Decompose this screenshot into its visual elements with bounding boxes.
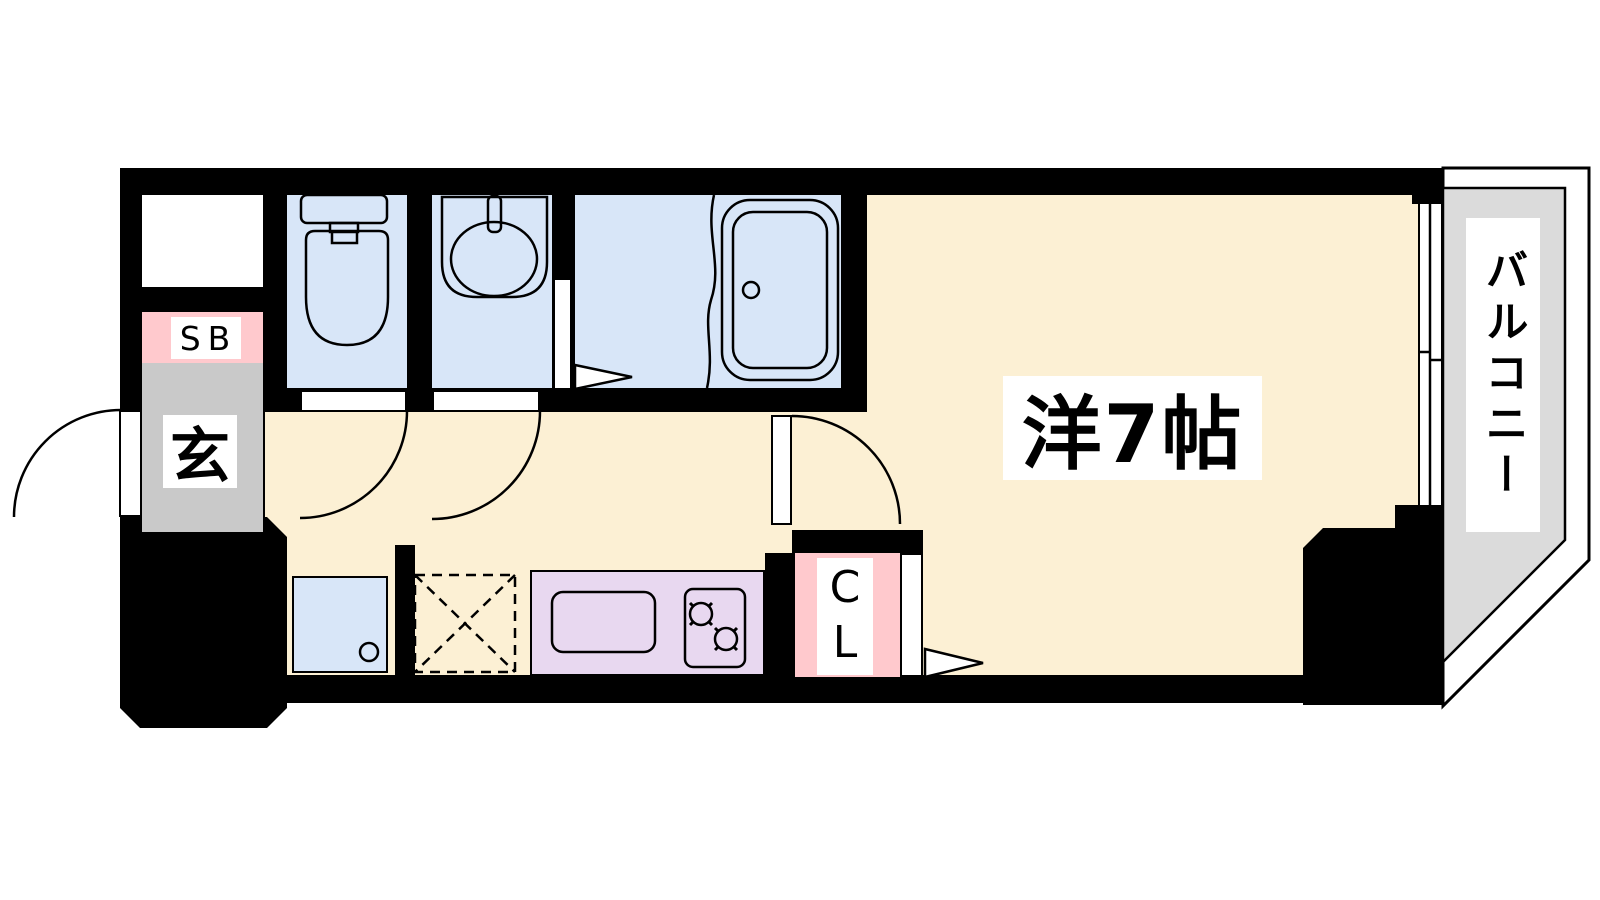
closet-label: CL <box>817 558 873 675</box>
toilet-door-leaf <box>300 390 407 412</box>
main-room-label: 洋7帖 <box>1003 376 1262 480</box>
entrance-door-leaf <box>119 410 142 517</box>
wall-above-window <box>1412 195 1443 204</box>
washroom-door-leaf <box>432 390 540 412</box>
kitchen-counter <box>530 570 765 676</box>
wall-kitchen-divider <box>395 545 415 677</box>
wall-bottom <box>287 675 1412 703</box>
pillar-bottom-right <box>1303 528 1443 705</box>
entrance-door-arc <box>14 410 121 517</box>
pillar-bottom-left <box>120 517 287 728</box>
wall-closet-left <box>765 553 795 677</box>
wall-toilet-washroom <box>407 168 432 412</box>
entrance-label: 玄 <box>163 415 237 488</box>
closet-door <box>900 553 923 677</box>
laundry-pan <box>292 576 388 673</box>
wall-bathroom-right <box>841 168 867 412</box>
toilet-room <box>287 195 407 388</box>
shoe-box-label: SB <box>171 317 241 359</box>
bathroom <box>575 195 841 388</box>
wall-closet-top <box>792 530 923 553</box>
wall-left <box>120 195 142 412</box>
hall-door-leaf <box>771 415 792 525</box>
balcony-label: バルコニー <box>1466 218 1540 532</box>
wall-top <box>120 168 1443 195</box>
balcony-window <box>1418 202 1443 510</box>
wall-entry-column <box>263 168 287 412</box>
pipe-space <box>142 195 263 287</box>
bathroom-sliding-door <box>553 278 572 390</box>
floor-plan-page: { "plan": { "type": "apartment-floor-pla… <box>0 0 1600 900</box>
washbasin-room <box>432 195 552 388</box>
wall-ps-sb <box>142 287 263 312</box>
